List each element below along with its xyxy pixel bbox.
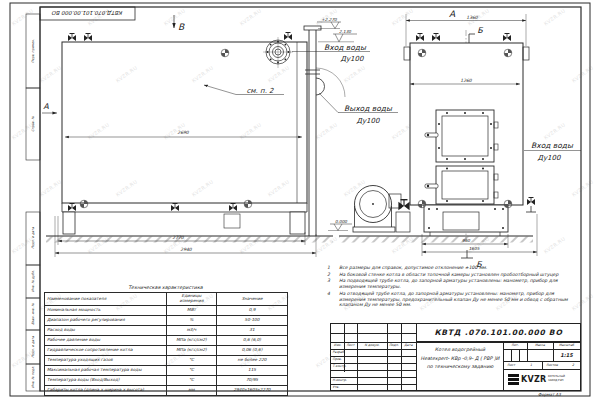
tech-table-row: Габариты котла (длина х ширина х высота)… [45, 386, 288, 396]
tech-table-cell: % [167, 316, 217, 326]
tb-header-podp: Подп. [387, 342, 401, 349]
tech-table-cell: Температура воды (Вход/Выход) [45, 376, 167, 386]
tech-table-cell: Рабочее давление воды [45, 336, 167, 346]
tech-table-cell: °С [167, 356, 217, 366]
title-block-doc-number: КВТД .070.101.00.000 ВО [416, 324, 580, 342]
tb-lit-label: Лит. [503, 342, 527, 349]
lifting-lug-icon [504, 200, 512, 208]
dim-1605: 1605 [469, 246, 480, 251]
blower-fan-icon [353, 186, 410, 233]
boiler-base [424, 205, 508, 236]
inlet-top-dn: Ду100 [341, 55, 365, 63]
corner-doc-number: КВТД.070.101.00.000 ВО [51, 10, 122, 16]
margin-stamp-label: Подп. и дата [31, 335, 35, 358]
margin-stamp-label: Взам. инв. № [31, 303, 35, 325]
outlet-pipe [304, 26, 345, 236]
tech-table-cell: 50-100 [217, 316, 288, 326]
tech-table-cell: МПа (кгс/см2) [167, 336, 217, 346]
view-label-a-left: А [43, 102, 49, 111]
margin-stamp-label: Подп. и дата [31, 226, 35, 249]
kvzr-logo-sub2: ЗАВОД РЭП [548, 379, 563, 382]
tech-table-cell: мм [167, 386, 217, 396]
tb-role-razrab: Разраб. [333, 349, 346, 356]
tech-table-rows: Номинальная мощностьМВт0,9Диапазон рабоч… [45, 306, 288, 396]
view-label-b: В [178, 22, 185, 32]
tech-table-cell: 70/95 [217, 376, 288, 386]
tech-table-row: Максимальная рабочая температура воды°С1… [45, 366, 288, 376]
lifting-lug-icon [80, 200, 88, 208]
elevation-zero: 0.000 [335, 219, 347, 224]
note-text: На боковой стенке котла в области топочн… [339, 272, 573, 278]
margin-stamp-label: Справ. № [31, 116, 35, 132]
see-note-label: см. п. 2 [246, 87, 274, 95]
tb-scale-label: Масштаб [553, 342, 580, 349]
tech-table-row: Температура воды (Вход/Выход)°С70/95 [45, 376, 288, 386]
inlet-right-dn: Ду100 [538, 154, 562, 162]
tb-product-name: Котел водогрейный Heatexpert- КВр -0,9- … [416, 342, 503, 390]
tech-table-cell: 0,06 (0,6) [217, 346, 288, 356]
tech-table-row: Диапазон рабочего регулирования%50-100 [45, 316, 288, 326]
margin-stamp-label: Инв. № дубл. [31, 270, 35, 292]
tb-sheets-label: Листов [546, 362, 558, 369]
margin-stamp-label: Инв. № подл. [31, 366, 35, 388]
tb-product-line: Котел водогрейный [417, 346, 503, 355]
valve-icon [527, 198, 535, 206]
tech-table-cell: Диапазон рабочего регулирования [45, 316, 167, 326]
tb-sheet-label: Лист [507, 362, 515, 369]
valve-icon [84, 34, 92, 42]
boiler-foot [290, 212, 305, 234]
notes-list: 1Все размеры для справок, допустимое отк… [327, 265, 573, 309]
tech-table-title: Техническая характеристика [44, 283, 287, 292]
tb-scale-value: 1:15 [553, 349, 580, 361]
ash-box [224, 214, 240, 228]
tech-table-row: Температура уходящих газов°Сне более 220 [45, 356, 288, 366]
section-mark [469, 34, 475, 43]
tech-table-header: Единицы измерения [167, 293, 217, 306]
tech-table-cell: °С [167, 376, 217, 386]
kvzr-logo-text: KVZR [521, 374, 547, 385]
valve-icon [416, 34, 424, 42]
dim-1360: 1360 [466, 15, 479, 20]
boiler-front-view [404, 30, 536, 240]
drain-valve-icon [229, 204, 237, 212]
lifting-lug-icon [418, 49, 426, 57]
note-number: 3 [327, 278, 334, 289]
tb-role-tkontr: Т.контр. [333, 363, 347, 370]
tb-header-ndoc: N докум. [357, 342, 387, 349]
valve-icon [68, 34, 76, 42]
tech-table-cell: °С [167, 366, 217, 376]
drawing-sheet: KVZR.RUKVZR.RUKVZR.RUKVZR.RUKVZR.RUKVZR.… [0, 0, 600, 400]
tech-table-cell: Гидравлическое сопротивление котла [45, 346, 167, 356]
drain-valve-icon [68, 204, 76, 212]
tech-table-cell: 115 [217, 366, 288, 376]
tb-sheets-value: 2 [572, 362, 574, 369]
elevation-mid: 2.130 [339, 29, 351, 34]
outlet-label: Выход воды [344, 104, 393, 113]
tech-table-cell: МВт [167, 306, 217, 316]
note-number: 4 [327, 291, 334, 308]
note-number: 1 [327, 265, 334, 271]
elevation-top: +2.270 [321, 17, 337, 22]
lifting-lug-icon [244, 200, 252, 208]
inlet-right-label: Вход воды [531, 141, 574, 150]
tech-table-row: Рабочее давление водыМПа (кгс/см2)0,6 (6… [45, 336, 288, 346]
tech-table-cell: 2940х1605х2270 [217, 386, 288, 396]
tech-table-header-row: Наименование показателя Единицы измерени… [45, 293, 288, 306]
tech-table-row: Расход водым3/ч31 [45, 326, 288, 336]
note-item: 2На боковой стенке котла в области топоч… [327, 272, 573, 278]
tech-table-cell: Максимальная рабочая температура воды [45, 366, 167, 376]
section-mark [461, 250, 473, 258]
view-label-a-top: А [449, 9, 456, 19]
tb-product-line: по техническому заданию [417, 363, 503, 372]
elevation-marks [317, 22, 357, 231]
tech-table-header: Наименование показателя [45, 293, 167, 306]
ground-line [46, 236, 533, 243]
tb-product-line: Heatexpert- КВр -0,9- Д ( РВР )И [417, 355, 503, 364]
tech-table-header: Значение [217, 293, 288, 306]
dim-1260: 1260 [460, 78, 473, 83]
tb-header-list: Лист [344, 342, 357, 349]
section-label-b-top: Б [477, 26, 483, 35]
note-text: На отводящей трубе котла, до запорной ар… [339, 291, 573, 308]
valve-icon [503, 34, 511, 42]
tb-role-utv: Утв. [333, 384, 340, 391]
tech-table-row: Номинальная мощностьМВт0,9 [45, 306, 288, 316]
tech-table-cell: 31 [217, 326, 288, 336]
kvzr-logo-sub1: КОТЕЛЬНЫЙ [548, 375, 565, 378]
dim-2690: 2690 [177, 130, 190, 135]
tech-table-cell: Температура уходящих газов [45, 356, 167, 366]
outlet-dn: Ду100 [357, 117, 381, 125]
note-number: 2 [327, 272, 334, 278]
tech-table-row: Гидравлическое сопротивление котлаМПа (к… [45, 346, 288, 356]
tech-table-cell: Расход воды [45, 326, 167, 336]
tb-header-izm: Изм. [331, 342, 344, 349]
tb-sheet-value: 1 [530, 362, 532, 369]
note-item: 3На подводящей трубе котла, до запорной … [327, 278, 573, 289]
tb-header-data: Дата [401, 342, 416, 349]
title-block: КВТД .070.101.00.000 ВО Изм. Лист N доку… [330, 323, 581, 391]
tech-table-cell: 0,6 (6,0) [217, 336, 288, 346]
margin-stamp-label: Перв. примен. [31, 39, 35, 63]
note-item: 1Все размеры для справок, допустимое отк… [327, 265, 573, 271]
tech-table-cell: не более 220 [217, 356, 288, 366]
valve-icon [284, 33, 292, 41]
boiler-foot [63, 212, 75, 234]
valve-icon [432, 34, 440, 42]
tb-role-prov: Пров. [333, 356, 342, 363]
lifting-lug-icon [418, 200, 426, 208]
tech-table-cell: м3/ч [167, 326, 217, 336]
tech-table-cell: Габариты котла (длина х ширина х высота) [45, 386, 167, 396]
boiler-side-view [62, 37, 307, 234]
tech-table-cell: Номинальная мощность [45, 306, 167, 316]
inlet-top-label: Вход воды [324, 43, 367, 52]
tech-table: Техническая характеристика Наименование … [44, 283, 287, 396]
format-label: Формат А3 [538, 392, 561, 397]
dim-960: 960 [462, 238, 470, 243]
blower-valve-icon [398, 200, 409, 211]
note-item: 4На отводящей трубе котла, до запорной а… [327, 291, 573, 308]
lifting-lug-icon [504, 49, 512, 57]
margin-stamp-boxes [26, 14, 40, 391]
tech-table-cell: МПа (кгс/см2) [167, 346, 217, 356]
lifting-lug-icon [221, 49, 229, 57]
note-text: Все размеры для справок, допустимое откл… [339, 265, 573, 271]
tb-role-nkontr: Н.контр. [333, 377, 347, 384]
dim-2940: 2940 [180, 247, 193, 252]
tb-mass-label: Масса [527, 342, 553, 349]
note-text: На подводящей трубе котла, до запорной а… [339, 278, 573, 289]
kvzr-logo-icon [508, 374, 519, 385]
drain-valve-icon [171, 204, 179, 212]
tech-table-cell: 0,9 [217, 306, 288, 316]
